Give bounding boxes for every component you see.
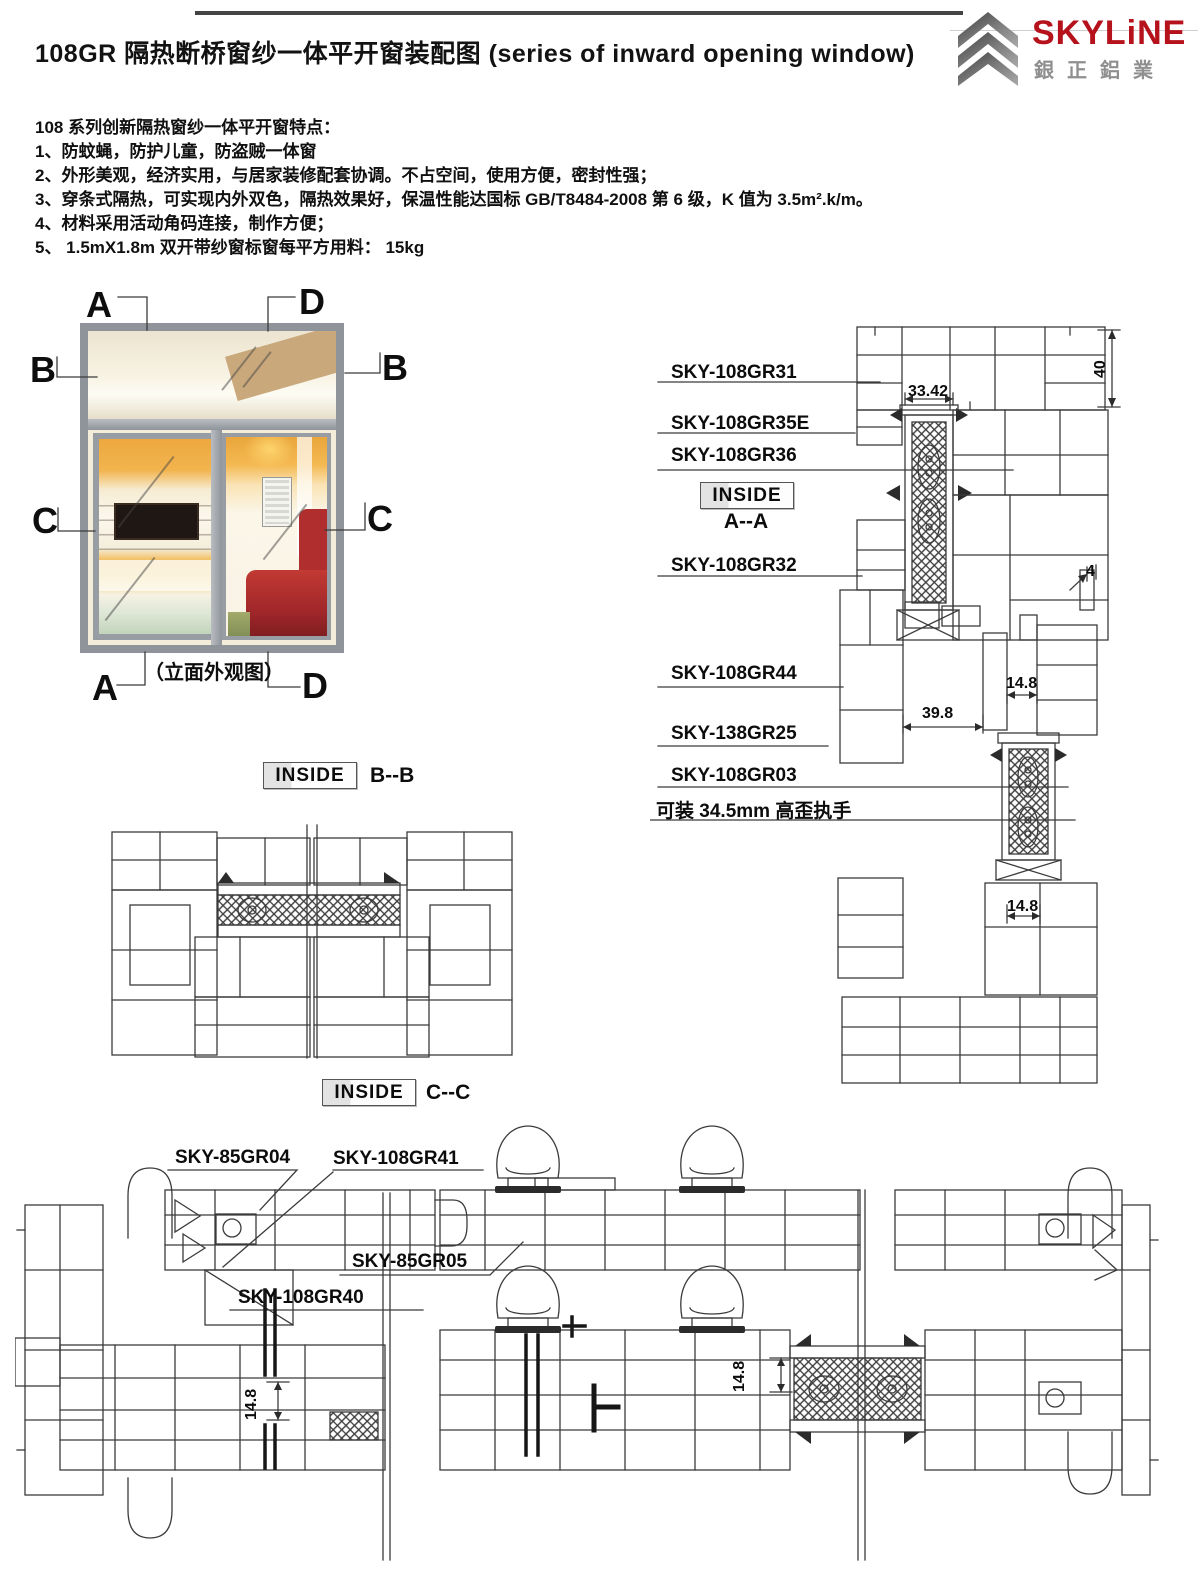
dim-cc-right: 14.8 <box>731 1361 749 1392</box>
feature-item: 5、 1.5mX1.8m 双开带纱窗标窗每平方用料： 15kg <box>35 236 975 260</box>
aa-bottom-frame <box>838 878 1097 1083</box>
section-name-bb: B--B <box>370 764 414 788</box>
part-label: SKY-108GR35E <box>671 413 809 435</box>
cc-section-drawing <box>15 1120 1195 1570</box>
feature-item: 4、材料采用活动角码连接，制作方便； <box>35 212 975 236</box>
part-label: SKY-138GR25 <box>671 723 797 745</box>
part-label: SKY-85GR04 <box>175 1147 290 1169</box>
elevation-markers-lines <box>20 280 420 710</box>
section-marker-c-right: C <box>367 498 393 540</box>
cc-left-frame <box>15 1168 172 1538</box>
dim-frame-height: 40 <box>1092 360 1110 378</box>
part-label: SKY-108GR41 <box>333 1148 459 1170</box>
cc-handles <box>495 1126 745 1333</box>
part-label: SKY-108GR44 <box>671 663 797 685</box>
section-marker-a-bottom: A <box>92 667 118 709</box>
bb-centerlines <box>307 825 317 1058</box>
logo-brand-text: SKYLiNE <box>1032 14 1186 53</box>
dim-gap-bottom: 14.8 <box>1007 898 1038 916</box>
aa-top-frame <box>857 327 1105 445</box>
feature-item: 1、防蚊蝇，防护儿童，防盗贼一体窗 <box>35 140 975 164</box>
section-name-cc: C--C <box>426 1081 470 1105</box>
dim-top-width: 33.42 <box>908 383 948 401</box>
cc-left-bottom-rail <box>60 1290 385 1470</box>
section-marker-d-top: D <box>299 281 325 323</box>
inside-label-cc: INSIDE <box>322 1079 416 1106</box>
page-title-en: (series of inward opening window) <box>489 40 915 68</box>
part-label: SKY-85GR05 <box>352 1251 467 1273</box>
aa-insulated-mullion-2 <box>990 733 1067 880</box>
page-title-zh: 108GR 隔热断桥窗纱一体平开窗装配图 <box>35 40 481 68</box>
features-heading: 108 系列创新隔热窗纱一体平开窗特点： <box>35 116 975 140</box>
dim-overlap: 39.8 <box>922 705 953 723</box>
feature-item: 3、穿条式隔热，可实现内外双色，隔热效果好，保温性能达国标 GB/T8484-2… <box>35 188 975 212</box>
aa-insulated-mullion <box>886 405 972 640</box>
elevation-caption: （立面外观图） <box>144 656 284 685</box>
logo-sub-text: 銀正鋁業 <box>1034 54 1166 83</box>
inside-label-aa: INSIDE <box>700 482 794 509</box>
bb-left-profile <box>112 832 310 1057</box>
part-label: SKY-108GR40 <box>238 1287 364 1309</box>
part-label: SKY-108GR03 <box>671 765 797 787</box>
dim-bead: 4 <box>1086 563 1095 581</box>
assembly-drawing-page: 108GR 隔热断桥窗纱一体平开窗装配图 (series of inward o… <box>0 0 1200 1571</box>
cc-middle-rails <box>440 1178 860 1470</box>
section-marker-d-bottom: D <box>302 665 328 707</box>
scan-artifact-line <box>195 11 963 15</box>
part-label: SKY-108GR31 <box>671 362 797 384</box>
dim-gap-top: 14.8 <box>1006 675 1037 693</box>
bb-insulated-bar <box>218 872 400 937</box>
page-title: 108GR 隔热断桥窗纱一体平开窗装配图 (series of inward o… <box>35 34 955 70</box>
section-marker-a-top: A <box>86 284 112 326</box>
cc-right-group <box>895 1168 1158 1495</box>
section-name-aa: A--A <box>700 510 792 534</box>
bb-section-drawing <box>100 740 620 1070</box>
part-label: SKY-108GR32 <box>671 555 797 577</box>
dim-cc-left: 14.8 <box>243 1389 261 1420</box>
section-marker-b-left: B <box>30 349 56 391</box>
skyline-logo: SKYLiNE 銀正鋁業 <box>952 8 1192 88</box>
feature-item: 2、外形美观，经济实用，与居家装修配套协调。不占空间，使用方便，密封性强； <box>35 164 975 188</box>
features-list: 108 系列创新隔热窗纱一体平开窗特点： 1、防蚊蝇，防护儿童，防盗贼一体窗 2… <box>35 116 975 260</box>
skyline-chevron-icon <box>952 10 1024 86</box>
section-marker-c-left: C <box>32 500 58 542</box>
inside-label-bb: INSIDE <box>263 762 357 789</box>
section-marker-b-right: B <box>382 347 408 389</box>
bb-right-profile <box>314 832 512 1057</box>
handle-note: 可装 34.5mm 高歪执手 <box>656 796 851 823</box>
part-label: SKY-108GR36 <box>671 445 797 467</box>
